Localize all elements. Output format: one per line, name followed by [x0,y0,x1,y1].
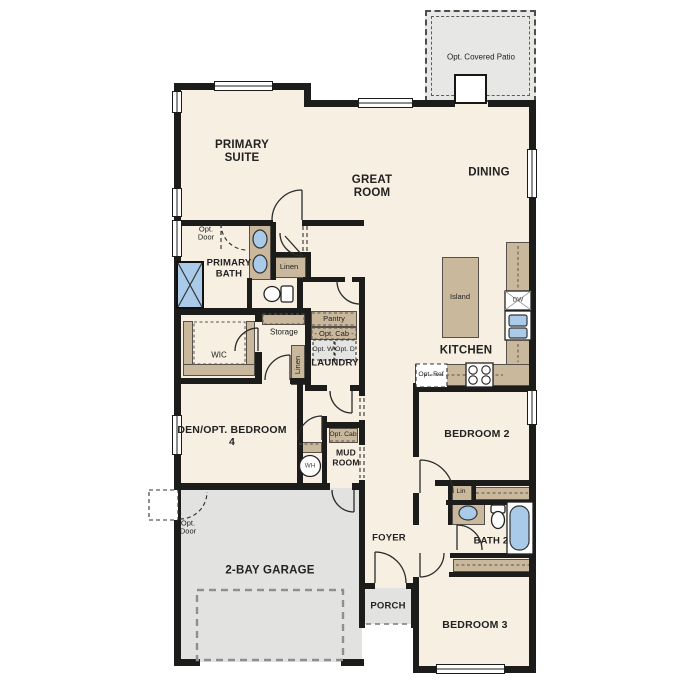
pantry-label: Pantry [323,315,345,323]
water-heater-label: WH [305,462,316,469]
opt-cab-label-mud: Opt. Cab [329,431,356,439]
garage-door-dashed-outline [197,590,343,660]
island-label: Island [450,293,470,301]
room-label-mud-room: MUD ROOM [323,448,369,467]
room-label-wic: WIC [211,350,227,359]
opt-cab-label-laundry: - Opt. Cab - [314,330,353,338]
opt-door-label-bath: Opt. Door [191,226,221,243]
room-label-bedroom2: BEDROOM 2 [444,429,509,441]
stove-icon [466,363,493,387]
room-label-den: DEN/OPT. BEDROOM 4 [176,425,288,449]
lin-label: Lin [456,488,465,496]
room-label-kitchen: KITCHEN [440,345,493,358]
linen-label: Linen [280,263,298,271]
floor-plan: Opt. Covered Patio PRIMARY SUITE GREAT R… [0,0,687,687]
room-label-bath2: BATH 2 [471,537,511,548]
opt-washer-label: Opt. W [312,346,334,354]
room-label-primary-suite: PRIMARY SUITE [197,139,287,165]
room-label-dining: DINING [468,167,509,180]
room-label-foyer: FOYER [372,534,406,545]
kitchen-sink-icon [505,311,531,340]
opt-ref-label: Opt. Ref [418,371,444,379]
opt-door-label-garage: Opt. Door [173,520,203,537]
linen-tall-label: Linen [294,356,302,374]
room-label-patio: Opt. Covered Patio [426,52,536,61]
room-label-primary-bath: PRIMARY BATH [193,258,265,279]
room-label-laundry: LAUNDRY [311,359,359,370]
storage-label: Storage [270,327,298,336]
bath2-sink-icon [459,506,477,520]
room-label-porch: PORCH [370,602,405,613]
bath2-toilet-icon [491,505,505,529]
room-label-garage: 2-BAY GARAGE [220,565,320,578]
room-label-bedroom3: BEDROOM 3 [442,620,507,632]
cabinet-dashed-lines [194,246,529,565]
room-label-great-room: GREAT ROOM [332,174,412,200]
symbols-overlay [0,0,687,687]
opt-door-box-garage [149,490,178,520]
opt-dryer-label: Opt. D [334,346,356,354]
patio-door-threshold [455,75,486,103]
dishwasher-label: DW [513,296,524,303]
primary-toilet-icon [264,286,293,302]
